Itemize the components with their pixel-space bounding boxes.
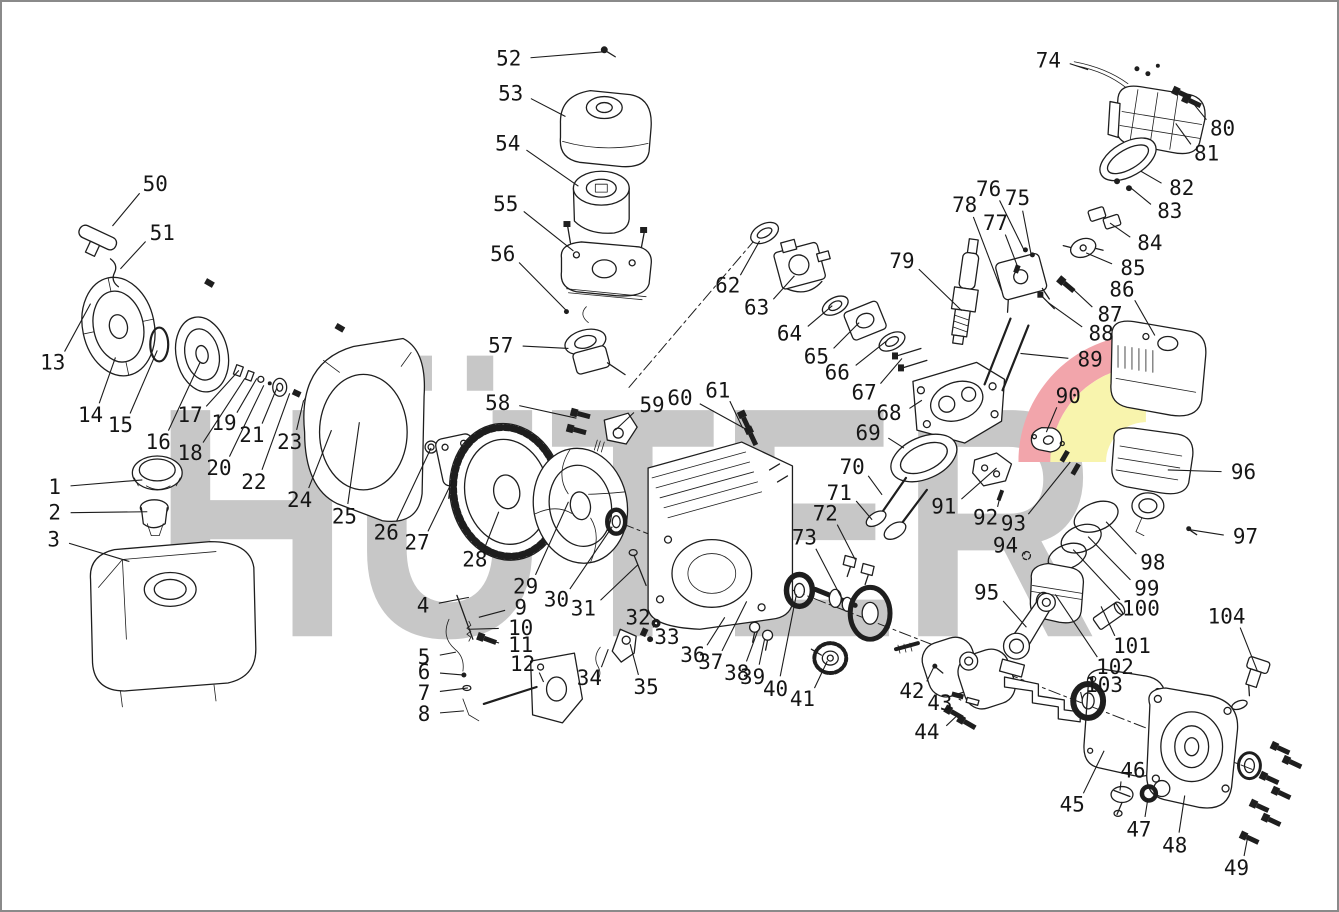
fuel-cap — [132, 456, 182, 490]
part-number-29: 29 — [513, 574, 538, 598]
leader-line-87 — [1066, 283, 1092, 307]
leader-line-1 — [71, 480, 143, 486]
carburetor — [771, 232, 837, 297]
part-number-78: 78 — [952, 193, 977, 217]
part-number-16: 16 — [146, 430, 171, 454]
crankcase-cover — [1147, 688, 1238, 808]
part-number-45: 45 — [1060, 792, 1085, 816]
part-number-25: 25 — [332, 505, 357, 529]
callout-52: 52 — [496, 47, 603, 71]
part-number-91: 91 — [931, 495, 956, 519]
muffler-bolt-a — [1114, 178, 1120, 184]
part-number-69: 69 — [856, 421, 881, 445]
part-number-28: 28 — [462, 548, 487, 572]
parts-diagram-page: HÜTER — [0, 0, 1339, 912]
part-number-8: 8 — [418, 702, 431, 726]
leader-line-85 — [1086, 253, 1112, 264]
part-number-62: 62 — [715, 274, 740, 298]
ignition-coil — [995, 253, 1051, 313]
kill-wire — [1074, 62, 1128, 88]
callout-33: 33 — [653, 624, 680, 649]
oil-seal-small — [1142, 787, 1156, 801]
leader-line-45 — [1083, 751, 1104, 794]
leader-line-82 — [1141, 171, 1162, 183]
callout-51: 51 — [120, 221, 174, 269]
leader-line-53 — [531, 99, 566, 117]
oil-seal-bore — [1244, 759, 1254, 773]
part-number-40: 40 — [763, 677, 788, 701]
part-number-98: 98 — [1140, 550, 1165, 574]
leader-line-2 — [71, 512, 148, 513]
part-number-104: 104 — [1208, 604, 1246, 628]
part-number-12: 12 — [510, 652, 535, 676]
part-number-19: 19 — [211, 411, 236, 435]
part-number-74: 74 — [1036, 49, 1061, 73]
part-number-84: 84 — [1137, 231, 1162, 255]
callout-84: 84 — [1110, 223, 1162, 255]
spark-plug — [947, 238, 985, 346]
part-number-60: 60 — [667, 386, 692, 410]
part-number-34: 34 — [577, 666, 602, 690]
leader-line-64 — [808, 306, 832, 327]
engine-exploded-diagram: HÜTER — [2, 2, 1337, 910]
part-number-97: 97 — [1233, 525, 1258, 549]
callout-50: 50 — [112, 172, 167, 226]
part-number-33: 33 — [654, 625, 679, 649]
part-number-32: 32 — [626, 605, 651, 629]
part-number-4: 4 — [417, 593, 430, 617]
callout-62: 62 — [715, 241, 759, 298]
part-number-24: 24 — [287, 488, 312, 512]
part-number-72: 72 — [813, 502, 838, 526]
muffler — [1108, 64, 1205, 154]
part-number-49: 49 — [1224, 856, 1249, 880]
part-number-35: 35 — [634, 675, 659, 699]
part-number-82: 82 — [1169, 176, 1194, 200]
part-number-58: 58 — [485, 391, 510, 415]
cylinder-block — [648, 442, 792, 629]
part-number-77: 77 — [983, 211, 1008, 235]
part-number-67: 67 — [852, 380, 877, 404]
part-number-31: 31 — [571, 596, 596, 620]
part-number-26: 26 — [374, 521, 399, 545]
part-number-2: 2 — [48, 501, 61, 525]
callout-85: 85 — [1086, 253, 1145, 280]
leader-line-8 — [440, 711, 464, 713]
part-number-23: 23 — [277, 430, 302, 454]
muffler-cover — [1111, 321, 1206, 416]
part-number-81: 81 — [1194, 141, 1219, 165]
part-number-54: 54 — [495, 131, 520, 155]
callout-44: 44 — [914, 717, 955, 744]
leader-line-55 — [524, 211, 574, 250]
callout-103: 103 — [1081, 673, 1123, 699]
part-number-46: 46 — [1120, 759, 1145, 783]
callout-46: 46 — [1120, 759, 1146, 791]
breather-tube — [583, 307, 589, 323]
exhaust-pipes — [1088, 203, 1122, 233]
part-number-51: 51 — [150, 221, 175, 245]
part-number-30: 30 — [544, 587, 569, 611]
part-number-70: 70 — [840, 455, 865, 479]
part-number-22: 22 — [241, 470, 266, 494]
callout-75: 75 — [1005, 186, 1032, 256]
air-filter-cover — [560, 91, 651, 167]
part-number-42: 42 — [899, 679, 924, 703]
part-number-96: 96 — [1231, 460, 1256, 484]
part-number-73: 73 — [792, 526, 817, 550]
callout-47: 47 — [1126, 798, 1151, 841]
part-number-92: 92 — [973, 506, 998, 530]
leader-line-98 — [1106, 522, 1136, 554]
part-number-79: 79 — [889, 249, 914, 273]
part-number-14: 14 — [78, 403, 103, 427]
part-number-53: 53 — [498, 82, 523, 106]
part-number-94: 94 — [993, 534, 1018, 558]
part-number-61: 61 — [705, 378, 730, 402]
air-filter-element — [573, 171, 629, 233]
callout-1: 1 — [48, 475, 142, 499]
part-number-13: 13 — [40, 350, 65, 374]
part-number-18: 18 — [178, 441, 203, 465]
leader-line-51 — [120, 241, 145, 268]
part-number-43: 43 — [927, 691, 952, 715]
callout-98: 98 — [1106, 522, 1165, 575]
part-number-52: 52 — [496, 47, 521, 71]
part-number-47: 47 — [1126, 817, 1151, 841]
part-number-85: 85 — [1120, 256, 1145, 280]
leader-line-83 — [1130, 187, 1151, 204]
part-number-56: 56 — [490, 242, 515, 266]
part-number-93: 93 — [1001, 512, 1026, 536]
leader-line-52 — [531, 52, 604, 58]
air-cleaner-assembly — [1112, 428, 1193, 536]
fuel-tank — [90, 542, 255, 707]
part-number-88: 88 — [1089, 322, 1114, 346]
part-number-48: 48 — [1162, 833, 1187, 857]
part-number-20: 20 — [206, 456, 231, 480]
governor-gear — [811, 643, 846, 673]
callout-97: 97 — [1190, 525, 1258, 549]
leader-line-97 — [1190, 530, 1224, 535]
part-number-55: 55 — [493, 192, 518, 216]
part-number-86: 86 — [1109, 278, 1134, 302]
part-number-39: 39 — [740, 665, 765, 689]
part-number-57: 57 — [488, 333, 513, 357]
part-number-95: 95 — [974, 580, 999, 604]
leader-line-88 — [1048, 303, 1082, 327]
part-number-75: 75 — [1005, 186, 1030, 210]
part-number-17: 17 — [178, 403, 203, 427]
part-number-64: 64 — [777, 322, 802, 346]
part-number-50: 50 — [143, 172, 168, 196]
part-number-15: 15 — [108, 413, 133, 437]
callout-74: 74 — [1036, 49, 1088, 73]
part-number-1: 1 — [48, 475, 61, 499]
callout-49: 49 — [1224, 838, 1249, 880]
oil-filler-cap — [1111, 787, 1133, 817]
leader-line-49 — [1244, 838, 1247, 856]
carb-insulator — [843, 300, 887, 341]
part-number-90: 90 — [1056, 384, 1081, 408]
part-number-103: 103 — [1085, 673, 1123, 697]
part-number-37: 37 — [698, 650, 723, 674]
callout-79: 79 — [889, 249, 961, 311]
part-number-27: 27 — [405, 531, 430, 555]
callout-32: 32 — [626, 605, 651, 633]
callout-56: 56 — [490, 242, 566, 311]
starter-handle — [72, 223, 119, 262]
part-number-63: 63 — [744, 296, 769, 320]
callout-53: 53 — [498, 82, 565, 117]
callout-45: 45 — [1060, 751, 1104, 817]
starter-cup-hole — [612, 516, 620, 528]
leader-line-56 — [519, 262, 566, 310]
leader-line-44 — [946, 717, 955, 726]
part-number-66: 66 — [825, 360, 850, 384]
part-number-83: 83 — [1157, 199, 1182, 223]
callout-82: 82 — [1141, 171, 1194, 200]
part-number-100: 100 — [1122, 596, 1160, 620]
callout-2: 2 — [48, 501, 147, 525]
sensor-oring — [1231, 698, 1249, 711]
part-number-44: 44 — [914, 720, 939, 744]
part-number-41: 41 — [790, 687, 815, 711]
part-number-59: 59 — [639, 393, 664, 417]
leader-line-50 — [112, 193, 139, 226]
part-number-3: 3 — [47, 528, 60, 552]
part-number-76: 76 — [976, 177, 1001, 201]
part-number-21: 21 — [239, 423, 264, 447]
part-number-80: 80 — [1210, 116, 1235, 140]
callout-48: 48 — [1162, 796, 1187, 858]
part-number-89: 89 — [1078, 347, 1103, 371]
